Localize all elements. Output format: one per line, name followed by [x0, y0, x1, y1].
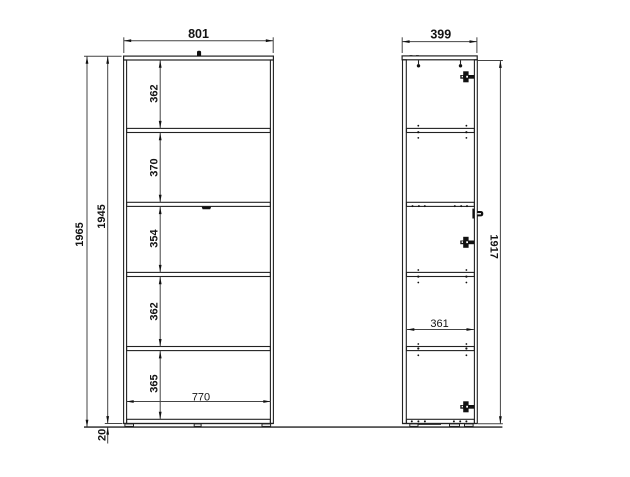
svg-text:1945: 1945 [96, 204, 108, 228]
svg-text:370: 370 [148, 158, 160, 176]
svg-text:1965: 1965 [74, 222, 86, 246]
svg-text:361: 361 [430, 318, 448, 330]
svg-text:362: 362 [148, 302, 160, 320]
svg-text:770: 770 [192, 392, 210, 404]
svg-text:362: 362 [148, 84, 160, 102]
svg-text:20: 20 [96, 429, 108, 441]
svg-text:354: 354 [148, 229, 160, 248]
svg-text:399: 399 [430, 28, 451, 42]
svg-text:1917: 1917 [487, 234, 499, 258]
svg-text:365: 365 [148, 374, 160, 392]
svg-text:801: 801 [188, 27, 209, 41]
